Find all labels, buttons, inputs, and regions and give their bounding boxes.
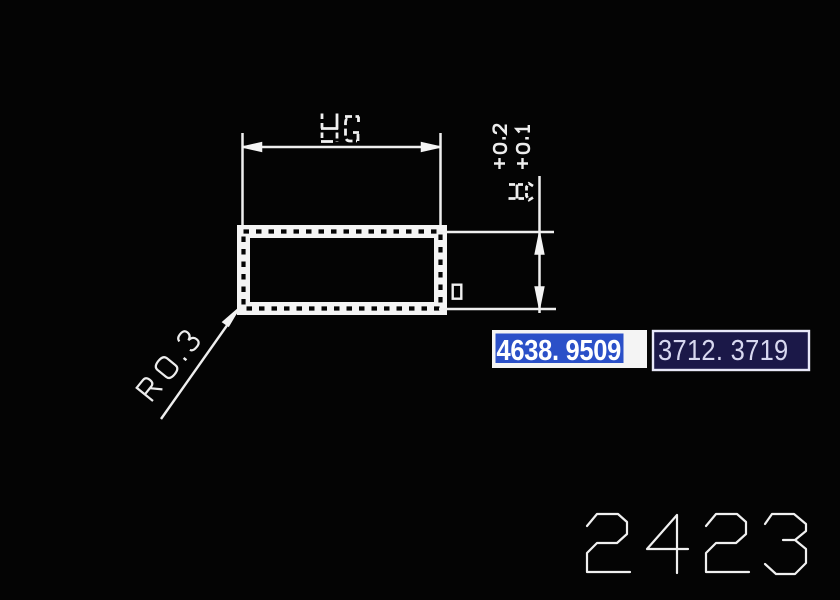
svg-text:4638. 9509: 4638. 9509 — [497, 334, 622, 367]
svg-text:3712. 3719: 3712. 3719 — [658, 334, 789, 367]
